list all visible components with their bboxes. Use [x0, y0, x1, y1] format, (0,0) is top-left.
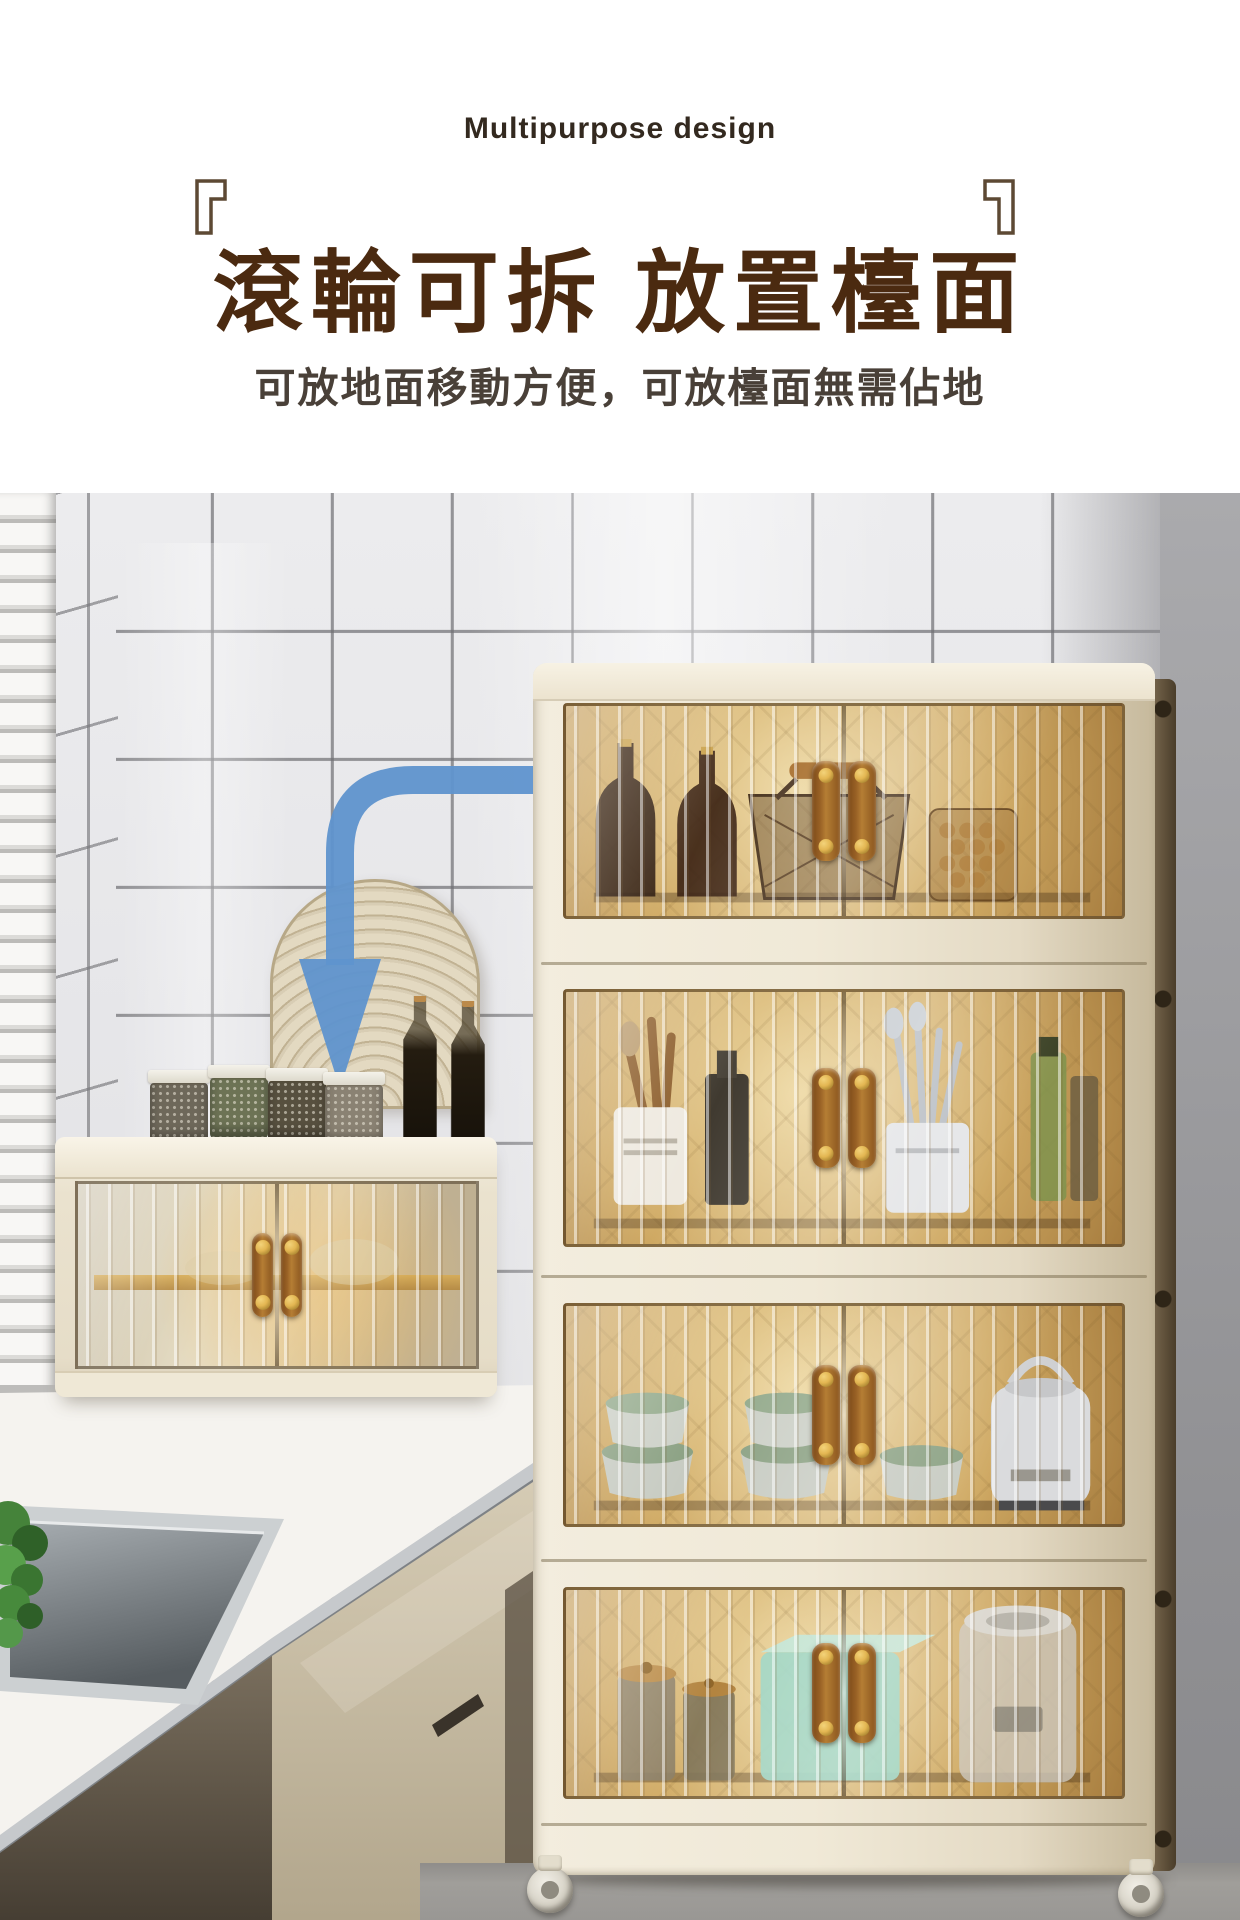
- spice-jar: [268, 1081, 326, 1141]
- leather-grip: [812, 761, 840, 861]
- countertop-storage-box: [55, 1137, 497, 1397]
- tier1-doors: [563, 703, 1125, 919]
- caster-wheel: [1118, 1871, 1164, 1917]
- four-tier-storage-cabinet: [533, 663, 1155, 1875]
- leather-grip: [252, 1233, 273, 1317]
- caster-wheel: [527, 1867, 573, 1913]
- storage-box-base: [55, 1371, 497, 1397]
- tier3-doors: [563, 1303, 1125, 1527]
- door-handle: [812, 1068, 876, 1168]
- page-title: 滾輪可拆 放置檯面: [0, 220, 1240, 350]
- leather-grip: [812, 1365, 840, 1465]
- cabinet-lid: [533, 663, 1155, 701]
- spice-jar: [325, 1085, 383, 1145]
- tier2-doors: [563, 989, 1125, 1247]
- door-handle: [252, 1233, 302, 1317]
- stack-seam: [541, 1559, 1147, 1562]
- door-handle: [812, 761, 876, 861]
- eyebrow-text: Multipurpose design: [0, 112, 1240, 146]
- leather-grip: [812, 1643, 840, 1743]
- leather-grip: [848, 1643, 876, 1743]
- leather-grip: [848, 1365, 876, 1465]
- stack-seam: [541, 962, 1147, 965]
- leather-grip: [848, 1068, 876, 1168]
- kitchen-photo: [0, 493, 1240, 1920]
- stack-seam: [541, 1275, 1147, 1278]
- storage-box-lid: [55, 1137, 497, 1179]
- counter-and-sink: [0, 1373, 545, 1920]
- leather-grip: [281, 1233, 302, 1317]
- storage-box-doors: [75, 1181, 479, 1369]
- leather-grip: [812, 1068, 840, 1168]
- page-subtitle: 可放地面移動方便，可放檯面無需佔地: [0, 354, 1240, 414]
- product-banner: Multipurpose design 滾輪可拆 放置檯面 可放地面移動方便，可…: [0, 0, 1240, 1920]
- spice-jar: [150, 1083, 208, 1143]
- door-handle: [812, 1365, 876, 1465]
- spice-jar: [210, 1078, 268, 1138]
- stack-seam: [541, 1823, 1147, 1826]
- tier4-doors: [563, 1587, 1125, 1799]
- leather-grip: [848, 761, 876, 861]
- door-handle: [812, 1643, 876, 1743]
